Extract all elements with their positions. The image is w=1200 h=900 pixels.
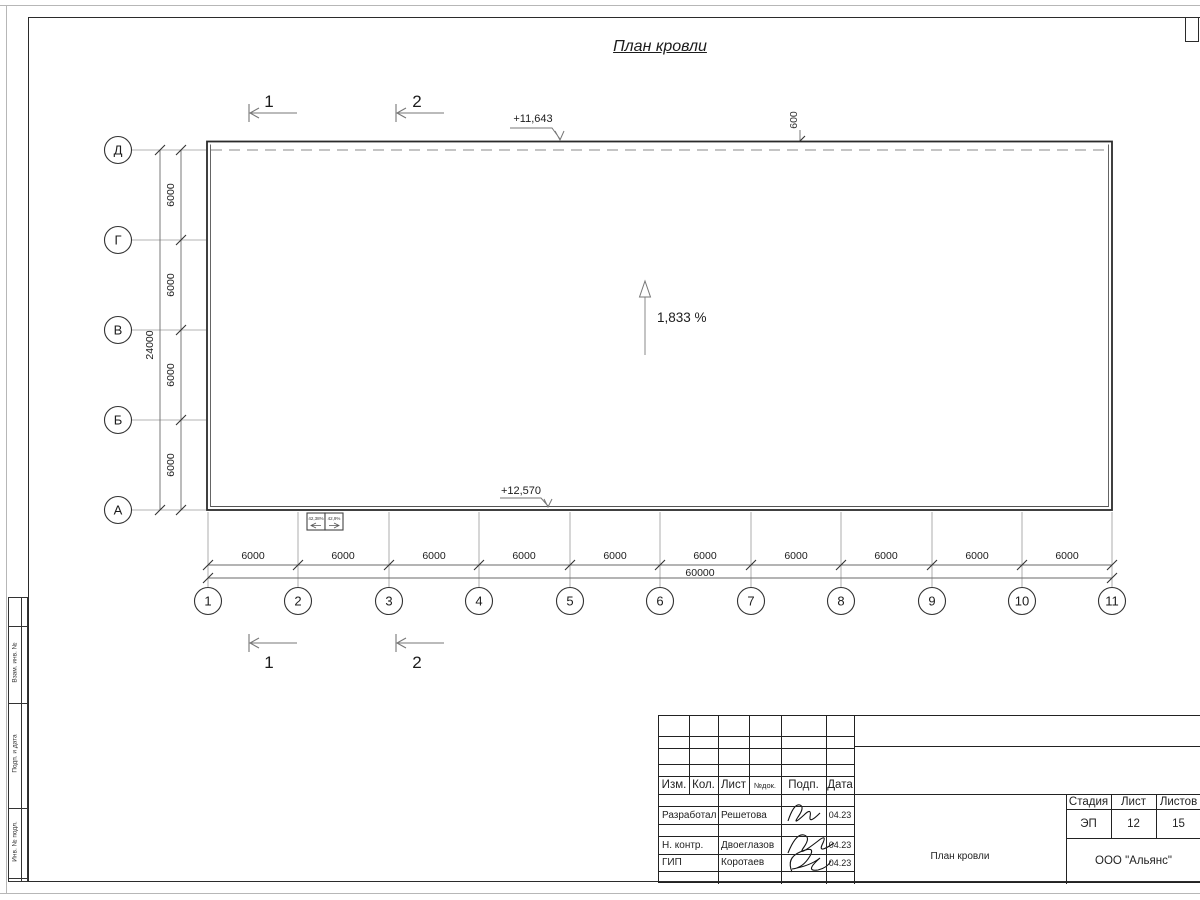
outer-frame-left [6,5,7,893]
frame-attribute-strip: Взам. инв. № Подп. и дата Инв. № подл. [8,597,28,882]
corner-stamp-box [1185,17,1199,42]
tb-role-gip: ГИП [659,854,721,871]
tb-date: 04.23 [826,854,854,871]
strip-label-podp: Подп. и дата [12,724,19,784]
tb-line [659,764,854,765]
tb-line [659,748,854,749]
tb-line [659,824,854,825]
tb-header-podp: Подп. [781,776,826,794]
tb-sheets-value: 15 [1156,809,1200,838]
tb-role-razrabotal: Разработал [659,806,721,824]
tb-role-nkontr: Н. контр. [659,836,721,854]
strip-line [9,808,27,809]
tb-line [659,871,854,872]
tb-name-reshetova: Решетова [718,806,784,824]
title-block: Изм. Кол. Лист №док. Подп. Дата Разработ… [658,715,1200,883]
tb-date: 04.23 [826,806,854,824]
tb-header-izm: Изм. [659,776,689,794]
strip-label-vzam: Взам. инв. № [12,633,19,693]
tb-line [854,746,1200,747]
tb-company: ООО "Альянс" [1066,838,1200,884]
strip-divider [21,598,22,881]
tb-name-korotaev: Коротаев [718,854,784,871]
tb-date: 04.23 [826,836,854,854]
tb-line [659,736,854,737]
tb-doc-name: План кровли [854,841,1066,871]
strip-line [9,878,27,879]
tb-sheets-label: Листов [1156,794,1200,809]
tb-header-data: Дата [826,776,854,794]
tb-header-ndok: №док. [749,776,781,794]
page-title: План кровли [530,38,790,56]
strip-line [9,626,27,627]
tb-sheet-value: 12 [1111,809,1156,838]
tb-header-list: Лист [718,776,749,794]
outer-frame-top [0,5,1200,6]
outer-frame-bottom [0,893,1200,894]
tb-name-dvoeglazov: Двоеглазов [718,836,784,854]
tb-stage-label: Стадия [1066,794,1111,809]
strip-label-inv: Инв. № подл. [12,812,19,872]
tb-stage-value: ЭП [1066,809,1111,838]
tb-sheet-label: Лист [1111,794,1156,809]
strip-line [9,703,27,704]
tb-header-kol: Кол. [689,776,718,794]
drawing-sheet: { "page": { "title": "План кровли" }, "c… [0,0,1200,900]
